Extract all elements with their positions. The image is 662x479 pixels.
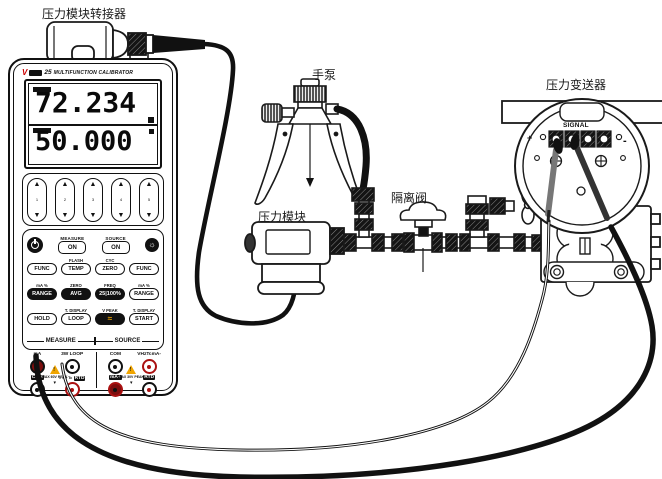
power-row: MEASURE ON SOURCE ON ☼ xyxy=(27,233,159,257)
multifunction-calibrator: V 25 MULTIFUNCTION CALIBRATOR 72.234 50.… xyxy=(8,58,178,396)
primary-reading: 72.234 xyxy=(35,86,136,119)
arrow-up-icon: ▲ xyxy=(34,181,41,188)
model-number: 25 xyxy=(44,69,51,76)
warning-triangle-icon: ! xyxy=(126,365,136,374)
waveform-icon: ≈ xyxy=(108,315,112,323)
com-jack xyxy=(30,382,45,397)
start-button: START xyxy=(129,313,159,325)
polarity-marker-icon: ▾ xyxy=(53,381,56,386)
label-isolation-valve: 隔离阀 xyxy=(391,189,427,206)
isolation-valve xyxy=(400,202,445,272)
arrow-key-panel: ▲1▼ ▲2▼ ▲3▼ ▲4▼ ▲5▼ xyxy=(22,173,164,226)
label-pressure-module-adapter: 压力模块转接器 xyxy=(42,5,126,22)
arrow-key-1: ▲1▼ xyxy=(27,178,47,222)
arrow-up-icon: ▲ xyxy=(118,181,125,188)
arrow-key-number: 4 xyxy=(120,198,122,202)
measure-on-button: ON xyxy=(58,241,86,254)
arrow-key-number: 1 xyxy=(36,198,38,202)
vhztc-rtd-jack xyxy=(65,382,80,397)
hold-button: HOLD xyxy=(27,313,57,325)
pressure-module xyxy=(245,222,344,294)
keypad-panel: MEASURE ON SOURCE ON ☼ FUNC FLASHTEMP CY… xyxy=(22,229,164,350)
arrow-key-5: ▲5▼ xyxy=(139,178,159,222)
warning-text: MAX 60V PEAK xyxy=(42,375,68,379)
lcd-inner: 72.234 50.000 xyxy=(28,83,158,165)
arrow-key-number: 3 xyxy=(92,198,94,202)
measure-terminals: mA 3W LOOP COM V Hz Tc RTD ! MAX 60V PEA… xyxy=(20,352,90,388)
com-source-jack xyxy=(108,359,123,374)
backlight-button: ☼ xyxy=(145,238,159,252)
key-row-1: FUNC FLASHTEMP CYCZERO FUNC xyxy=(25,258,161,275)
arrow-up-icon: ▲ xyxy=(90,181,97,188)
terminal-label-rtd-src: RTD xyxy=(143,375,155,380)
func-button-left: FUNC xyxy=(27,263,57,275)
backlight-icon: ☼ xyxy=(148,240,155,249)
device-title: MULTIFUNCTION CALIBRATOR xyxy=(54,70,134,76)
terminal-label-vhztcma: VHzTcmA- xyxy=(137,352,161,358)
unit-annunciator-bottom xyxy=(149,129,154,134)
hand-pump xyxy=(255,79,374,204)
loop-button: LOOP xyxy=(61,313,91,325)
terminal-label-rtd: RTD xyxy=(74,376,86,381)
calibrator-face: V 25 MULTIFUNCTION CALIBRATOR 72.234 50.… xyxy=(13,63,173,391)
source-terminals: COM VHzTcmA- mA+ RTD ! MAX 30V PEAK ▾ xyxy=(96,352,167,388)
label-hand-pump: 手泵 xyxy=(312,66,336,83)
arrow-up-icon: ▲ xyxy=(62,181,69,188)
ma-jack xyxy=(30,359,45,374)
source-on-group: SOURCE ON xyxy=(102,236,130,254)
key-row-3: HOLD T. DISPLAYLOOP V PEAK≈ T. DISPLAYST… xyxy=(25,308,161,325)
arrow-down-icon: ▼ xyxy=(62,212,69,219)
arrow-down-icon: ▼ xyxy=(90,212,97,219)
terminal-label-3wloop: 3W LOOP xyxy=(61,352,83,358)
label-pressure-module: 压力模块 xyxy=(258,208,306,225)
range-button-right: RANGE xyxy=(129,288,159,300)
plus-terminal-label: + xyxy=(527,133,532,143)
measure-on-group: MEASURE ON xyxy=(58,236,86,254)
ramp-button: ≈ xyxy=(95,313,125,325)
measure-section-label: MEASURE xyxy=(44,338,78,344)
arrow-down-icon: ▼ xyxy=(118,212,125,219)
vhztcma-jack xyxy=(142,359,157,374)
pressure-module-adapter xyxy=(47,22,205,62)
lcd-display: 72.234 50.000 xyxy=(24,79,162,169)
3w-loop-jack xyxy=(65,359,80,374)
temp-button: TEMP xyxy=(61,263,91,275)
pipe-line xyxy=(344,196,548,251)
unit-annunciator-top xyxy=(148,117,154,123)
step-25-100-button: 25|100% xyxy=(95,288,125,300)
section-labels: MEASURE SOURCE xyxy=(27,335,159,347)
secondary-reading: 50.000 xyxy=(35,126,133,157)
brand-logo-box xyxy=(29,70,42,76)
brand-logo-icon: V xyxy=(22,69,27,77)
source-on-button: ON xyxy=(102,241,130,254)
terminal-panel: mA 3W LOOP COM V Hz Tc RTD ! MAX 60V PEA… xyxy=(20,352,166,388)
terminal-label-com-src: COM xyxy=(110,352,121,358)
ma-plus-jack xyxy=(108,382,123,397)
arrow-key-2: ▲2▼ xyxy=(55,178,75,222)
pressure-transmitter-head xyxy=(515,99,649,233)
warning-text: MAX 30V PEAK xyxy=(118,375,144,379)
terminal-label-ma: mA xyxy=(34,352,42,358)
source-section-label: SOURCE xyxy=(113,338,143,344)
power-button xyxy=(27,237,43,253)
arrow-key-number: 5 xyxy=(148,198,150,202)
calibrator-header: V 25 MULTIFUNCTION CALIBRATOR xyxy=(22,67,168,78)
avg-button: AVG xyxy=(61,288,91,300)
rtd-jack xyxy=(142,382,157,397)
arrow-key-number: 2 xyxy=(64,198,66,202)
diagram-canvas: V 25 MULTIFUNCTION CALIBRATOR 72.234 50.… xyxy=(0,0,662,479)
zero-button: ZERO xyxy=(95,263,125,275)
minus-terminal-label: - xyxy=(623,135,627,147)
arrow-up-icon: ▲ xyxy=(146,181,153,188)
signal-terminal-label: SIGNAL xyxy=(563,122,589,129)
polarity-marker-icon: ▾ xyxy=(130,381,133,386)
arrow-key-3: ▲3▼ xyxy=(83,178,103,222)
arrow-down-icon: ▼ xyxy=(34,212,41,219)
arrow-key-4: ▲4▼ xyxy=(111,178,131,222)
warning-triangle-icon: ! xyxy=(50,365,60,374)
range-button-left: RANGE xyxy=(27,288,57,300)
label-pressure-transmitter: 压力变送器 xyxy=(546,76,606,93)
arrow-down-icon: ▼ xyxy=(146,212,153,219)
func-button-right: FUNC xyxy=(129,263,159,275)
key-row-2: mA %RANGE ZEROAVG FREQ25|100% mA %RANGE xyxy=(25,283,161,300)
